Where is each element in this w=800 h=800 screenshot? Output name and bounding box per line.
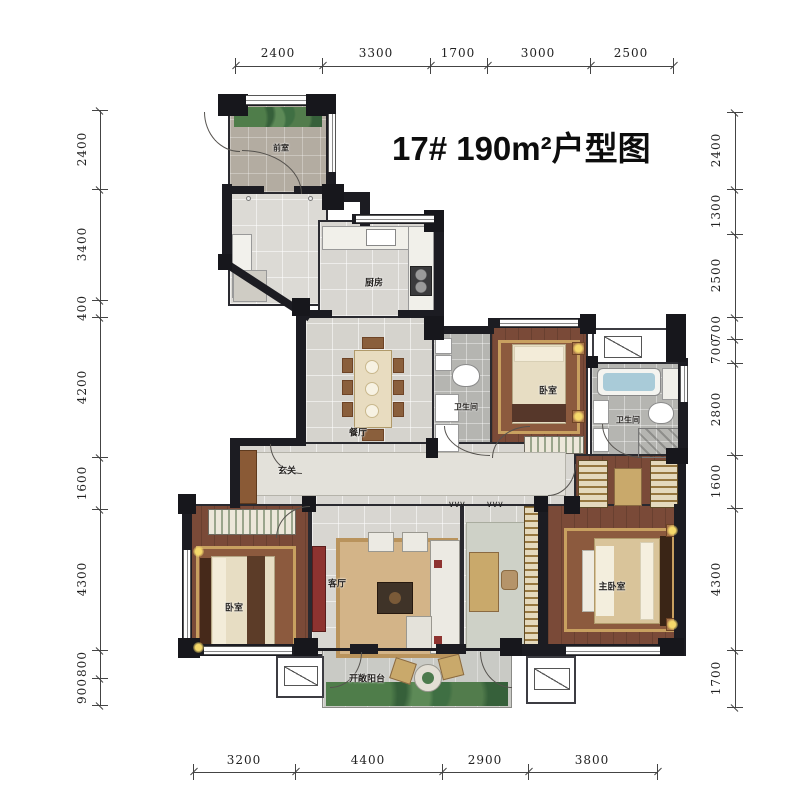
dim-bottom-1: 4400 [351, 753, 386, 767]
dim-tick [442, 764, 443, 780]
label-balcony: 开敞阳台 [349, 672, 385, 685]
wall-pier [586, 356, 598, 368]
dim-tick [727, 112, 743, 113]
dining-chair [342, 380, 353, 395]
dim-line-right [735, 112, 736, 707]
toilet [648, 402, 674, 424]
dim-tick [92, 509, 108, 510]
dim-right-2: 2500 [709, 258, 723, 293]
dim-left-1: 3400 [75, 227, 89, 262]
wall-pier [424, 316, 444, 340]
armchair [402, 532, 428, 552]
label-living: 客厅 [328, 577, 346, 590]
wall-segment [296, 306, 306, 446]
dim-tick [92, 678, 108, 679]
balcony-table-plant [422, 672, 434, 684]
dim-left-7: 900 [75, 678, 89, 704]
window [246, 95, 306, 105]
wall-pier [426, 438, 438, 458]
lamp-glow [573, 343, 584, 354]
dim-tick [657, 764, 658, 780]
dim-tick [92, 189, 108, 190]
wall-segment [538, 504, 548, 656]
bath-vanity [593, 400, 609, 424]
dim-top-4: 2500 [614, 46, 649, 60]
dim-tick [528, 764, 529, 780]
dim-tick [92, 300, 108, 301]
coffee-table-dish [389, 592, 401, 604]
opening-mark: ∨∨∨ [486, 499, 503, 510]
label-bedroom3: 卧室 [225, 601, 243, 614]
dim-top-3: 3000 [521, 46, 556, 60]
washer [435, 338, 452, 354]
dim-tick [487, 58, 488, 74]
dim-line-bottom [193, 772, 657, 773]
dim-left-5: 4300 [75, 562, 89, 597]
window [566, 646, 660, 655]
dim-right-7: 4300 [709, 562, 723, 597]
label-kitchen: 厨房 [365, 276, 383, 289]
wall-pier [322, 184, 344, 210]
kitchen-stove [410, 266, 432, 296]
dim-tick [727, 455, 743, 456]
window [500, 319, 578, 327]
armchair [368, 532, 394, 552]
dim-tick [727, 339, 743, 340]
dim-top-1: 3300 [359, 46, 394, 60]
dim-tick [673, 58, 674, 74]
dim-tick [590, 58, 591, 74]
dim-tick [727, 189, 743, 190]
ac-symbol [604, 336, 642, 358]
dim-tick [727, 650, 743, 651]
dim-right-8: 1700 [709, 661, 723, 696]
toilet [452, 364, 480, 387]
bed-throw [512, 404, 566, 422]
sofa-pillow [434, 636, 442, 644]
bath-sink [662, 368, 679, 400]
plan-title: 17# 190m²户型图 [392, 122, 651, 170]
dining-plate [365, 404, 379, 418]
dim-left-0: 2400 [75, 132, 89, 167]
wall-pier [666, 448, 688, 464]
dim-tick [92, 457, 108, 458]
dim-top-2: 1700 [441, 46, 476, 60]
label-bedroom2: 卧室 [539, 384, 557, 397]
balcony-door-panel [436, 644, 466, 654]
dining-plate [365, 382, 379, 396]
dining-chair [393, 358, 404, 373]
dim-tick [430, 58, 431, 74]
wall-pier [218, 254, 232, 270]
dressing-wardrobe [578, 460, 608, 508]
bathtub-water [603, 373, 655, 391]
dim-tick [727, 234, 743, 235]
dim-top-0: 2400 [261, 46, 296, 60]
dining-chair [342, 358, 353, 373]
bed-pillows [640, 542, 654, 620]
dim-bottom-3: 3800 [575, 753, 610, 767]
label-bath2: 卫生间 [616, 415, 640, 426]
dim-tick [92, 110, 108, 111]
wall-pier [564, 496, 580, 514]
dim-line-left [100, 110, 101, 705]
dim-tick [727, 508, 743, 509]
window [183, 550, 191, 638]
label-bath1: 卫生间 [454, 402, 478, 413]
dim-tick [235, 58, 236, 74]
lamp-glow [193, 546, 204, 557]
window [680, 366, 688, 402]
bed-pillows [514, 346, 564, 362]
dim-right-4: 700 [709, 338, 723, 364]
door-arc [204, 112, 240, 152]
foyer-runner [256, 452, 566, 496]
dim-bottom-0: 3200 [227, 753, 262, 767]
lamp-glow [667, 525, 678, 536]
lamp-glow [573, 411, 584, 422]
dim-right-6: 1600 [709, 464, 723, 499]
wall-pier [658, 638, 684, 656]
dim-bottom-2: 2900 [468, 753, 503, 767]
wall-segment [230, 438, 240, 508]
dim-right-0: 2400 [709, 133, 723, 168]
dim-line-top [235, 66, 673, 67]
bed-headboard [200, 558, 211, 644]
dresser [614, 468, 642, 506]
dim-right-5: 2800 [709, 392, 723, 427]
dressing-wardrobe [650, 460, 678, 508]
sofa-pillow [434, 560, 442, 568]
dim-tick [193, 764, 194, 780]
lamp-glow [667, 619, 678, 630]
dim-tick [727, 317, 743, 318]
ac-symbol [534, 668, 570, 690]
wall-pier [178, 494, 196, 514]
floor-plan: ∨∨∨ ∨∨∨ 前室 厨房 餐厅 卫生间 卧室 卫生间 玄关 客厅 卧室 主卧室… [0, 0, 800, 800]
sofa-chaise [406, 616, 432, 650]
balcony-door-track [318, 648, 514, 651]
dim-right-1: 1300 [709, 194, 723, 229]
label-master-bedroom: 主卧室 [598, 580, 625, 593]
dim-left-6: 800 [75, 651, 89, 677]
washer [435, 355, 452, 371]
door-stop-dot [246, 196, 251, 201]
dining-chair [393, 402, 404, 417]
opening-mark: ∨∨∨ [448, 499, 465, 510]
desk-chair [501, 570, 518, 590]
label-dining: 餐厅 [349, 426, 367, 439]
label-foyer: 玄关 [278, 464, 296, 477]
bed-throw [247, 556, 265, 646]
wall-pier [292, 298, 310, 316]
dim-tick [727, 363, 743, 364]
dim-left-4: 1600 [75, 466, 89, 501]
dim-tick [92, 650, 108, 651]
wall-pier [534, 496, 548, 512]
window [204, 646, 292, 655]
dim-tick [727, 707, 743, 708]
dim-left-2: 400 [75, 295, 89, 321]
dim-tick [92, 317, 108, 318]
label-vestibule: 前室 [273, 143, 289, 154]
wall-pier [294, 638, 318, 656]
kitchen-sink [366, 229, 396, 246]
dining-chair [362, 337, 384, 349]
window [356, 215, 434, 223]
ac-symbol [284, 666, 318, 686]
desk [469, 552, 499, 612]
wall-pier [306, 94, 336, 116]
window [328, 114, 336, 172]
dim-tick [322, 58, 323, 74]
wall-pier [580, 314, 596, 334]
dining-chair [393, 380, 404, 395]
dining-plate [365, 360, 379, 374]
dim-tick [92, 705, 108, 706]
lamp-glow [193, 642, 204, 653]
dining-chair [342, 402, 353, 417]
dim-tick [295, 764, 296, 780]
door-stop-dot [308, 196, 313, 201]
wall-pier [666, 314, 686, 362]
tv-cabinet [312, 546, 326, 632]
dim-left-3: 4200 [75, 370, 89, 405]
bed-headboard [660, 536, 672, 626]
shoe-cabinet [239, 450, 257, 504]
